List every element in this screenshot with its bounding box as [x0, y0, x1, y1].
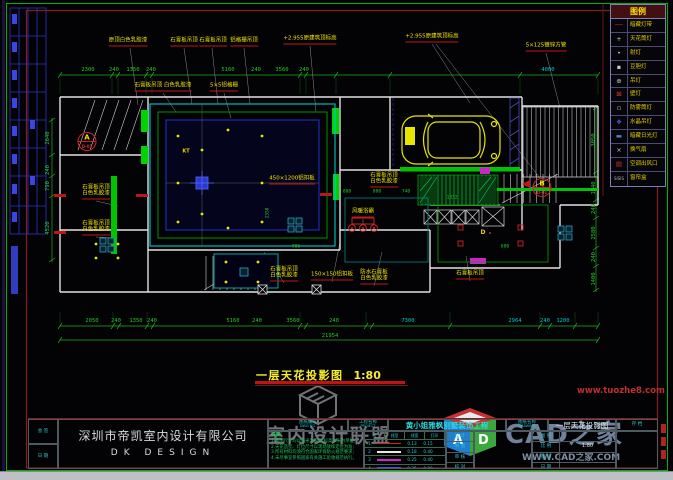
legend-item-label: 空调出风口 — [628, 158, 665, 171]
title-underline-thin — [255, 385, 408, 386]
sign-labels-column: 设 计制 图审 核校 对 — [446, 431, 474, 469]
legend-title: 图例 — [611, 5, 665, 19]
titleblock-field-label: 图 别 — [533, 432, 560, 441]
legend-row: ▫防雾筒灯 — [611, 102, 665, 116]
plan-code: D-01 — [82, 145, 93, 149]
titleblock-field-value: 1:80 — [560, 442, 615, 451]
titleblock-date-cell-label: 日 期 — [29, 445, 57, 468]
notes-lines: 1.本图尺寸均以毫米为单位,标高以米为单位;2.天花造型、灯位尺寸以现场放样定位… — [271, 439, 361, 462]
scale-fields-column: 图 别比 例1:80图 号日 期 — [532, 431, 616, 469]
line-schedule: 号线型线宽打印 10.130.1520.180.4030.250.4040.35… — [364, 431, 446, 469]
schedule-row: 30.250.40 — [365, 456, 445, 464]
titleblock-field-value — [560, 463, 615, 469]
titleblock-sign-label: 设 计 — [447, 432, 473, 442]
wall-light-icon: ⊠ — [611, 88, 628, 101]
sign-values-column — [474, 431, 532, 469]
legend-item-label: 窗帘盒 — [628, 172, 665, 186]
legend-row: SISIS窗帘盒 — [611, 172, 665, 186]
concealed-fluorescent-icon: ▬ — [611, 130, 628, 143]
drawing-name: 一层天花投影图 — [549, 420, 615, 431]
titleblock-date-cell: 日 期 — [28, 444, 58, 469]
titleblock-sign-cell: 会 签 — [28, 419, 58, 444]
notes-cell: 说明: 1.本图尺寸均以毫米为单位,标高以米为单位;2.天花造型、灯位尺寸以现场… — [268, 431, 364, 469]
schedule-header: 号线型线宽打印 — [365, 432, 445, 440]
schedule-line-sample — [377, 467, 401, 469]
company-name-en: DK DESIGN — [59, 448, 267, 458]
schedule-lineweight: 0.18 — [404, 449, 420, 454]
titleblock-note-line: 1.本图尺寸均以毫米为单位,标高以米为单位; — [271, 439, 361, 445]
titleblock-sign-label: 制 图 — [447, 442, 473, 452]
titleblock-note-line: 4.未尽事宜参照国家有关施工验收规范执行。 — [271, 456, 361, 462]
schedule-header-cell: 打印 — [425, 432, 445, 439]
company-name: 深圳市帝凯室内设计有限公司 — [59, 427, 267, 444]
legend-row: ▬暗藏日光灯 — [611, 130, 665, 144]
cad-sheet: A D 230024013502405160240356024040002050… — [0, 0, 673, 480]
schedule-no: 3 — [365, 457, 374, 462]
schedule-print-weight: 0.15 — [420, 441, 436, 446]
project-name: 黄小姐雅枫别墅装饰工程 — [389, 420, 505, 431]
spotlight-icon: • — [611, 47, 628, 60]
schedule-lineweight: 0.25 — [404, 457, 420, 462]
legend-item-label: 暗藏灯带 — [628, 19, 665, 32]
curtain-box-icon: SISIS — [611, 172, 628, 186]
ac-vent-icon: ▤ — [611, 158, 628, 171]
title-block: 会 签 日 期 深圳市帝凯室内设计有限公司 DK DESIGN 图纸编号 DWG… — [28, 418, 658, 468]
legend-row: ──暗藏灯带 — [611, 19, 665, 33]
legend-item-label: 防雾筒灯 — [628, 102, 665, 115]
legend-row: ×换气扇 — [611, 144, 665, 158]
damp-proof-downlight-icon: ▫ — [611, 102, 628, 115]
sheet-no-cell: 图纸编号 DWG NO. — [268, 419, 348, 431]
drawing-label-cell: 图纸名称 DRAWING — [506, 419, 548, 431]
window-bottom-bar — [0, 471, 673, 480]
exhaust-fan-icon: × — [611, 144, 628, 157]
schedule-body: 10.130.1520.180.4030.250.4040.350.00 — [365, 440, 445, 469]
schedule-no: 2 — [365, 449, 374, 454]
plan-code: KT — [182, 150, 189, 155]
legend-item-label: 吊灯 — [628, 75, 665, 88]
concealed-strip-light-icon: ── — [611, 19, 628, 32]
schedule-no: 4 — [365, 466, 374, 469]
schedule-print-weight: 0.40 — [420, 449, 436, 454]
legend-row: ▪豆胆灯 — [611, 61, 665, 75]
schedule-line-sample — [377, 459, 401, 461]
company-cell: 深圳市帝凯室内设计有限公司 DK DESIGN — [58, 419, 268, 469]
titleblock-field: 图 号 — [533, 453, 615, 463]
titleblock-sign-cell-label: 会 签 — [29, 420, 57, 443]
schedule-header-cell: 线宽 — [405, 432, 425, 439]
legend-table: 图例 ──暗藏灯带+天花筒灯•射灯▪豆胆灯⊕吊灯⊠壁灯▫防雾筒灯❖水晶吊灯▬暗藏… — [610, 4, 666, 187]
schedule-line-sample — [377, 443, 401, 445]
titleblock-sign-label: 审 核 — [447, 453, 473, 463]
legend-item-label: 暗藏日光灯 — [628, 130, 665, 143]
titleblock-field-label: 日 期 — [533, 463, 560, 469]
crystal-chandelier-icon: ❖ — [611, 116, 628, 129]
plan-code: A — [84, 135, 89, 142]
legend-row: +天花筒灯 — [611, 33, 665, 47]
schedule-row: 10.130.15 — [365, 440, 445, 448]
titleblock-field-label: 图 号 — [533, 453, 560, 462]
plan-code: D — [481, 230, 486, 236]
schedule-line-sample — [377, 451, 401, 453]
file-cell: 存 档 — [616, 419, 658, 431]
schedule-print-weight: 0.00 — [420, 466, 436, 469]
legend-row: ⊠壁灯 — [611, 88, 665, 102]
project-label-en: PROJECT — [349, 425, 387, 429]
plan-code-layer: KTDAD-01BD-01 — [0, 0, 673, 480]
legend-row: •射灯 — [611, 47, 665, 61]
downlight-icon: + — [611, 33, 628, 46]
watermark-site-url: www.tuozhe8.com — [577, 386, 665, 396]
titleblock-field-label: 比 例 — [533, 442, 560, 451]
schedule-header-cell: 线型 — [385, 432, 405, 439]
legend-row: ❖水晶吊灯 — [611, 116, 665, 130]
titleblock-sign-label: 校 对 — [447, 463, 473, 469]
schedule-header-cell: 号 — [365, 432, 385, 439]
schedule-lineweight: 0.13 — [404, 441, 420, 446]
titleblock-field: 图 别 — [533, 432, 615, 442]
legend-item-label: 换气扇 — [628, 144, 665, 157]
schedule-print-weight: 0.40 — [420, 457, 436, 462]
plan-code: D-01 — [537, 191, 548, 195]
legend-item-label: 豆胆灯 — [628, 61, 665, 74]
titleblock-field: 比 例1:80 — [533, 442, 615, 452]
legend-row: ▤空调出风口 — [611, 158, 665, 172]
drawing-number-cell — [616, 431, 658, 469]
legend-rows: ──暗藏灯带+天花筒灯•射灯▪豆胆灯⊕吊灯⊠壁灯▫防雾筒灯❖水晶吊灯▬暗藏日光灯… — [611, 19, 665, 186]
drawing-label-en: DRAWING — [507, 425, 547, 429]
schedule-row: 20.180.40 — [365, 448, 445, 456]
sheet-no-label-en: DWG NO. — [269, 425, 347, 429]
bean-light-icon: ▪ — [611, 61, 628, 74]
titleblock-field-value — [560, 453, 615, 462]
legend-item-label: 天花筒灯 — [628, 33, 665, 46]
project-label-cell: 工程名称 PROJECT — [348, 419, 388, 431]
legend-item-label: 射灯 — [628, 47, 665, 60]
file-label: 存 档 — [617, 422, 657, 427]
legend-row: ⊕吊灯 — [611, 75, 665, 89]
legend-item-label: 壁灯 — [628, 88, 665, 101]
schedule-lineweight: 0.35 — [404, 466, 420, 469]
project-name-cell: 黄小姐雅枫别墅装饰工程 — [388, 419, 506, 431]
schedule-row: 40.350.00 — [365, 465, 445, 469]
schedule-no: 1 — [365, 441, 374, 446]
pendant-light-icon: ⊕ — [611, 75, 628, 88]
drawing-name-cell: 一层天花投影图 — [548, 419, 616, 431]
legend-item-label: 水晶吊灯 — [628, 116, 665, 129]
titleblock-field: 日 期 — [533, 463, 615, 469]
plan-code: B — [539, 181, 544, 188]
title-underline — [255, 381, 405, 384]
titleblock-field-value — [560, 432, 615, 441]
